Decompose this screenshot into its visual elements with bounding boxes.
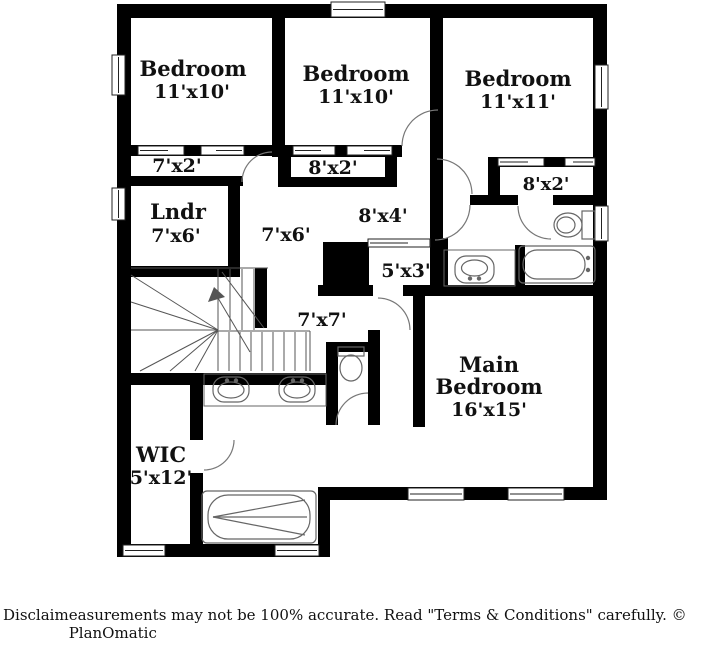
room-label: Bedroom: [302, 61, 409, 86]
closet-sliding-doors: [138, 146, 595, 247]
room-label: 8'x2': [523, 174, 570, 195]
wall: [228, 176, 240, 277]
wall: [190, 385, 203, 440]
stair-line: [131, 302, 218, 330]
window: [408, 488, 464, 500]
closet-sliding-door: [201, 146, 244, 155]
toilet: [338, 347, 364, 381]
closet-sliding-door: [368, 239, 430, 247]
window: [331, 2, 385, 17]
chase: [323, 242, 369, 286]
staircase: [131, 268, 310, 371]
door-arc: [518, 206, 551, 239]
room-label: 11'x11': [480, 91, 556, 113]
stair-line: [131, 275, 218, 330]
room-label: 7'x6': [261, 224, 310, 246]
floor-plan-svg: Bedroom11'x10'Bedroom11'x10'Bedroom11'x1…: [0, 0, 724, 600]
window: [112, 55, 125, 95]
room-label: 8'x2': [308, 157, 357, 179]
stair-line: [170, 330, 218, 371]
wall: [413, 296, 425, 427]
stair-direction-arrow: [208, 287, 225, 302]
room-label: 8'x4': [358, 205, 407, 227]
wall: [553, 195, 607, 205]
disclaimer-bar: Disclaim easurements may not be 100% acc…: [0, 606, 724, 642]
room-label: Lndr: [150, 199, 207, 224]
stair-line: [218, 298, 250, 352]
footer-disclaimer-left: Disclaim: [3, 606, 69, 642]
room-label: 11'x10': [318, 86, 394, 108]
room-label: 7'x2': [152, 155, 201, 177]
wall: [117, 176, 243, 186]
room-label: 7'x6': [151, 225, 200, 247]
wall: [318, 285, 373, 296]
window: [595, 206, 608, 241]
wall: [470, 195, 518, 205]
wall: [272, 18, 285, 157]
room-label: 16'x15': [451, 399, 527, 421]
room-label: 11'x10': [154, 81, 230, 103]
room-label: Bedroom: [435, 374, 542, 399]
wall: [318, 487, 330, 557]
vanity-sink: [444, 250, 515, 286]
door-arc: [204, 440, 234, 470]
window: [508, 488, 564, 500]
room-label: Bedroom: [464, 66, 571, 91]
wall: [403, 285, 607, 296]
closet-sliding-door: [347, 146, 392, 155]
room-label: WIC: [135, 442, 186, 467]
footer-disclaimer-text: easurements may not be 100% accurate. Re…: [69, 606, 721, 642]
closet-sliding-door: [565, 158, 595, 166]
floor-plan: Bedroom11'x10'Bedroom11'x10'Bedroom11'x1…: [0, 0, 724, 648]
room-label: 5'x12': [130, 467, 193, 489]
window: [595, 65, 608, 109]
window: [123, 545, 165, 556]
door-arc: [336, 393, 368, 425]
door-arc: [242, 152, 272, 182]
room-label: 5'x3': [381, 260, 430, 282]
window: [275, 545, 319, 556]
door-arc: [378, 298, 410, 330]
garden-tub: [202, 491, 316, 543]
bathtub: [519, 246, 595, 283]
wall: [117, 373, 326, 385]
wall: [368, 330, 380, 425]
room-label: Bedroom: [139, 56, 246, 81]
closet-sliding-door: [138, 146, 184, 155]
window: [112, 188, 125, 220]
room-label: 7'x7': [297, 309, 346, 331]
closet-sliding-door: [498, 158, 544, 166]
wall: [326, 342, 338, 425]
closet-sliding-door: [293, 146, 335, 155]
toilet: [554, 211, 595, 239]
